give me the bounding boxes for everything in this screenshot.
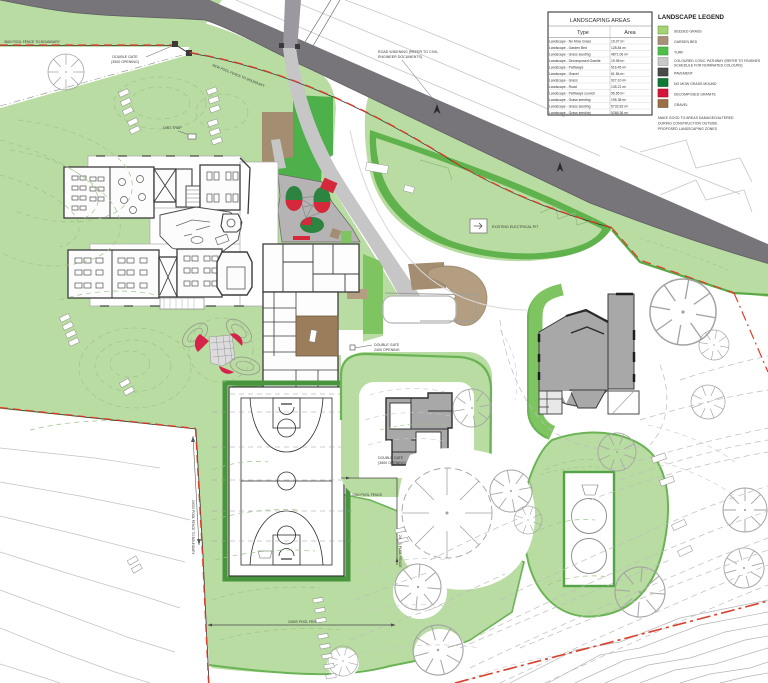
svg-text:NO MOW GRASS MOUND: NO MOW GRASS MOUND	[674, 82, 717, 86]
svg-text:TURF: TURF	[674, 51, 683, 55]
svg-text:GARDEN BED: GARDEN BED	[674, 40, 698, 44]
svg-text:3600 POOL FENCE TO BOUNDARY: 3600 POOL FENCE TO BOUNDARY	[4, 40, 61, 44]
svg-text:Landscape - Grass: Landscape - Grass	[549, 79, 578, 83]
svg-text:Landscape - Road: Landscape - Road	[549, 85, 577, 89]
svg-text:Landscape - Gravel: Landscape - Gravel	[549, 72, 579, 76]
svg-text:DOUBLE GATE: DOUBLE GATE	[374, 343, 400, 347]
svg-text:(3500 OPENING): (3500 OPENING)	[111, 60, 139, 64]
svg-text:2400 OPENING: 2400 OPENING	[374, 348, 400, 352]
svg-text:Area: Area	[624, 30, 635, 36]
svg-text:19.07 m²: 19.07 m²	[611, 40, 625, 44]
svg-text:Landscape - Pathways council: Landscape - Pathways council	[549, 92, 595, 96]
svg-text:ENGINEER DOCUMENTS): ENGINEER DOCUMENTS)	[378, 55, 422, 59]
svg-text:EXISTING ELECTRICAL PIT: EXISTING ELECTRICAL PIT	[492, 225, 539, 229]
svg-text:128.84 m²: 128.84 m²	[611, 46, 627, 50]
svg-text:Landscape - Pathways: Landscape - Pathways	[549, 66, 584, 70]
svg-text:PROPOSED LANDSCAPING ZONES: PROPOSED LANDSCAPING ZONES	[658, 127, 718, 131]
svg-text:SEEDED GRASS: SEEDED GRASS	[674, 30, 702, 34]
svg-text:LANDSCAPING AREAS: LANDSCAPING AREAS	[570, 18, 631, 24]
svg-text:516.45 m²: 516.45 m²	[611, 66, 627, 70]
svg-text:DIRT TRAP: DIRT TRAP	[163, 126, 182, 130]
svg-text:Landscape - Garden Bed: Landscape - Garden Bed	[549, 46, 587, 50]
svg-text:2400S POOL FENCE TO BOUNDARY: 2400S POOL FENCE TO BOUNDARY	[191, 500, 195, 555]
svg-text:Landscape - Grass seeding: Landscape - Grass seeding	[549, 111, 591, 115]
svg-text:COLOURED CONC. PATHWAY (REFER: COLOURED CONC. PATHWAY (REFER TO FINISHE…	[674, 59, 761, 63]
svg-text:Landscape - Decomposed Granite: Landscape - Decomposed Granite	[549, 59, 601, 63]
svg-text:927.10 m²: 927.10 m²	[611, 79, 627, 83]
svg-text:5732.83 m²: 5732.83 m²	[611, 105, 629, 109]
svg-text:DECOMPOSED GRANITE: DECOMPOSED GRANITE	[674, 93, 716, 97]
svg-text:DURING CONSTRUCTION OUTSIDE: DURING CONSTRUCTION OUTSIDE	[658, 122, 718, 126]
svg-text:95.65 m²: 95.65 m²	[611, 92, 625, 96]
svg-text:Landscape - No Mow Grass: Landscape - No Mow Grass	[549, 40, 591, 44]
svg-text:4871.06 m²: 4871.06 m²	[611, 53, 629, 57]
svg-text:SCHEDULE FOR NOMINATED COLOURS: SCHEDULE FOR NOMINATED COLOURS)	[674, 64, 743, 68]
svg-text:GRAVEL: GRAVEL	[674, 103, 688, 107]
svg-text:MAKE GOOD TO AREAS DAMAGED/ALT: MAKE GOOD TO AREAS DAMAGED/ALTERED	[658, 116, 734, 120]
svg-text:PAVEMENT: PAVEMENT	[674, 72, 694, 76]
svg-text:61.84 m²: 61.84 m²	[611, 72, 625, 76]
svg-text:2400 POOL FENCE: 2400 POOL FENCE	[352, 493, 383, 497]
svg-text:19.98 m²: 19.98 m²	[611, 59, 625, 63]
svg-text:Type: Type	[577, 30, 589, 36]
svg-text:5268.36 m²: 5268.36 m²	[611, 111, 629, 115]
svg-text:LANDSCAPE LEGEND: LANDSCAPE LEGEND	[658, 14, 725, 21]
svg-text:135.21 m²: 135.21 m²	[611, 85, 627, 89]
svg-text:Landscape - Grass seeding: Landscape - Grass seeding	[549, 53, 591, 57]
svg-text:(3600 OPENING): (3600 OPENING)	[378, 461, 406, 465]
svg-text:Landscape - Grass seeding: Landscape - Grass seeding	[549, 98, 591, 102]
svg-text:ROAD WIDENING (REFER TO CIVIL: ROAD WIDENING (REFER TO CIVIL	[378, 50, 438, 54]
svg-text:DOUBLE GATE: DOUBLE GATE	[112, 55, 138, 59]
svg-text:Landscape - Grass seeding: Landscape - Grass seeding	[549, 105, 591, 109]
svg-text:195.38 m²: 195.38 m²	[611, 98, 627, 102]
svg-text:DOUBLE GATE: DOUBLE GATE	[378, 456, 404, 460]
